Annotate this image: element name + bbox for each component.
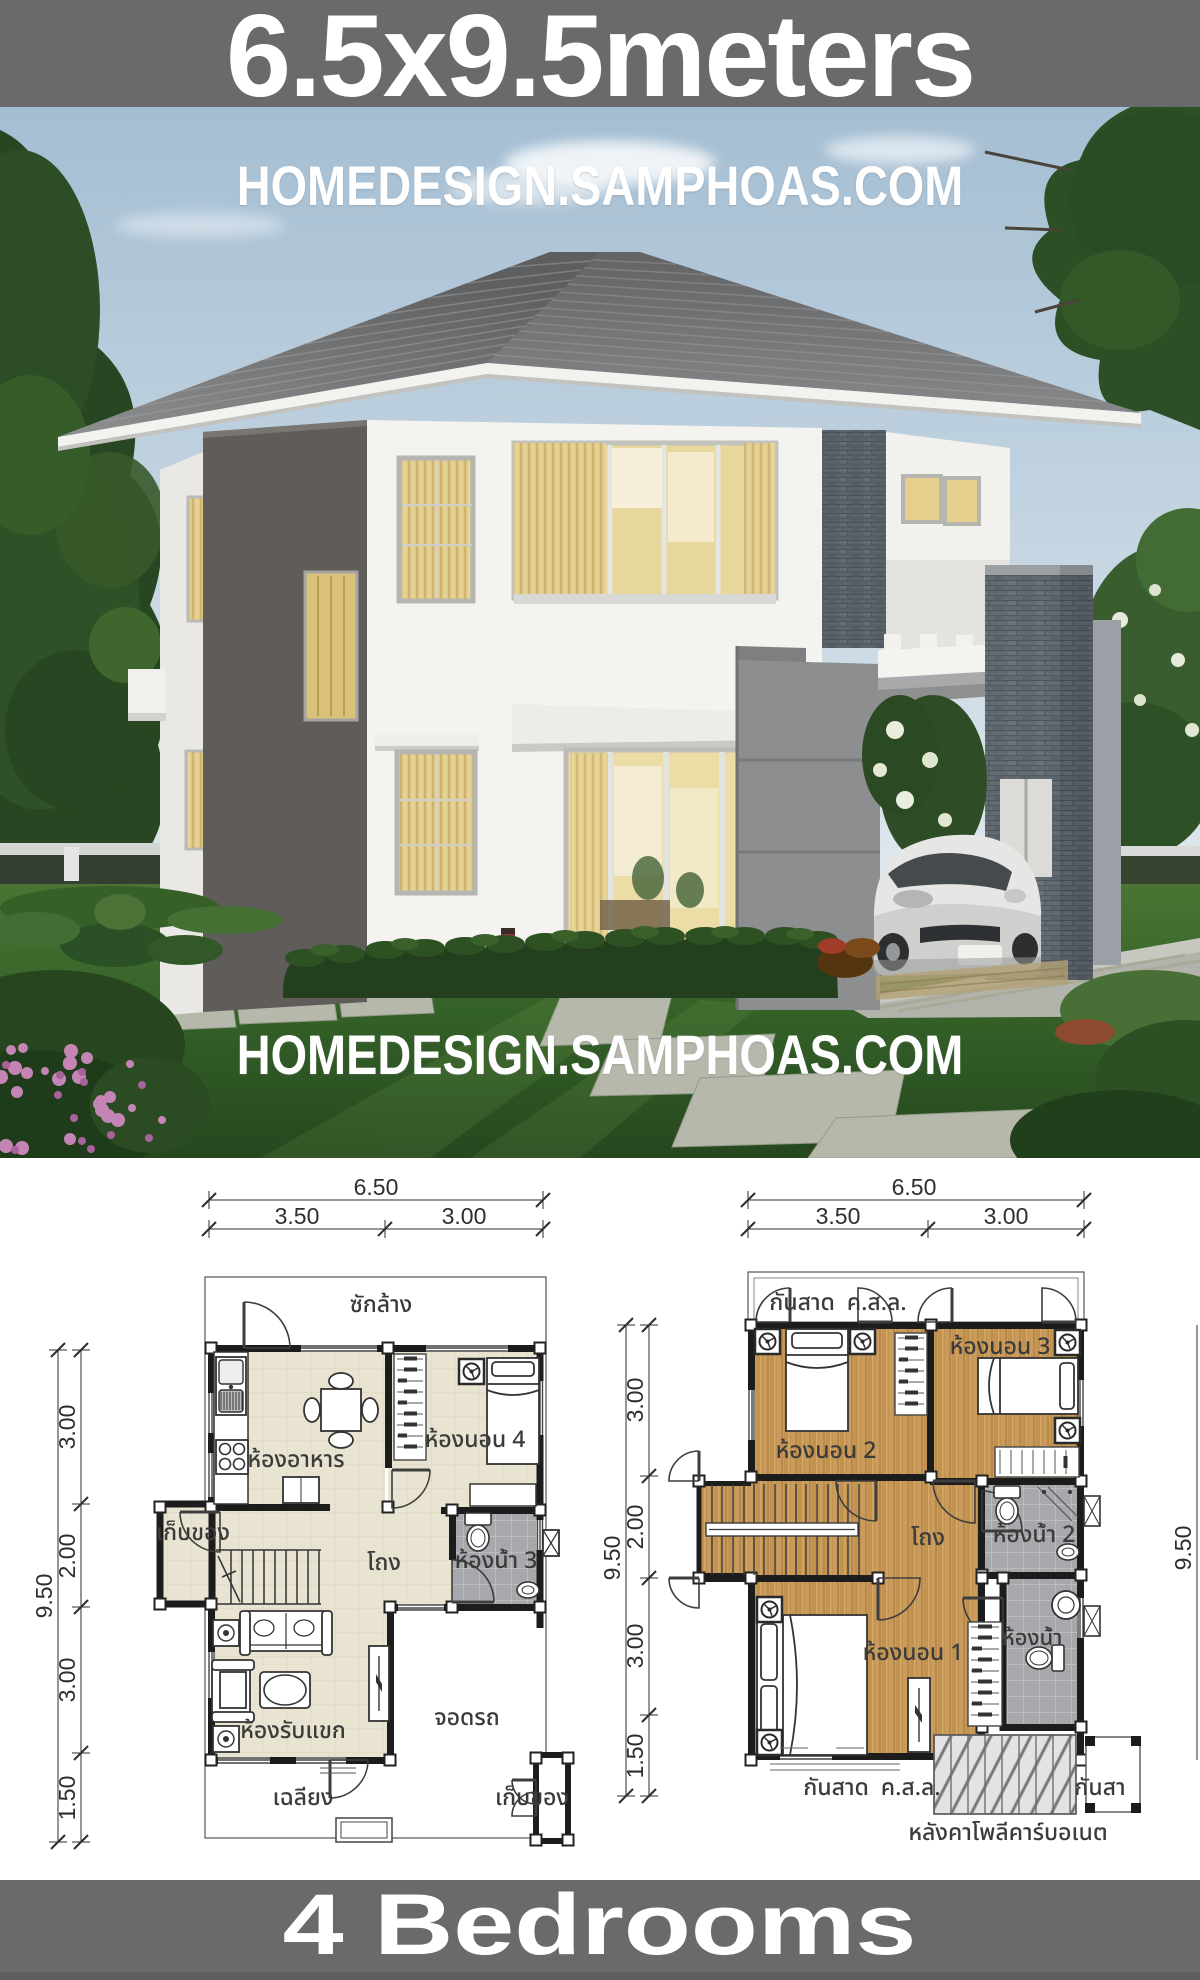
svg-text:3.50: 3.50	[816, 1203, 861, 1229]
svg-text:3.00: 3.00	[984, 1203, 1029, 1229]
svg-text:3.00: 3.00	[442, 1203, 487, 1229]
svg-text:6.50: 6.50	[354, 1174, 399, 1200]
svg-text:3.00: 3.00	[54, 1405, 80, 1450]
svg-text:3.50: 3.50	[275, 1203, 320, 1229]
svg-text:3.00: 3.00	[622, 1624, 648, 1669]
svg-text:1.50: 1.50	[622, 1734, 648, 1779]
svg-text:3.00: 3.00	[54, 1658, 80, 1703]
svg-text:2.00: 2.00	[54, 1534, 80, 1579]
svg-text:9.50: 9.50	[1170, 1526, 1196, 1571]
svg-text:3.00: 3.00	[622, 1378, 648, 1423]
svg-text:6.50: 6.50	[892, 1174, 937, 1200]
svg-text:9.50: 9.50	[31, 1574, 57, 1619]
svg-text:1.50: 1.50	[54, 1776, 80, 1821]
svg-text:2.00: 2.00	[622, 1505, 648, 1550]
